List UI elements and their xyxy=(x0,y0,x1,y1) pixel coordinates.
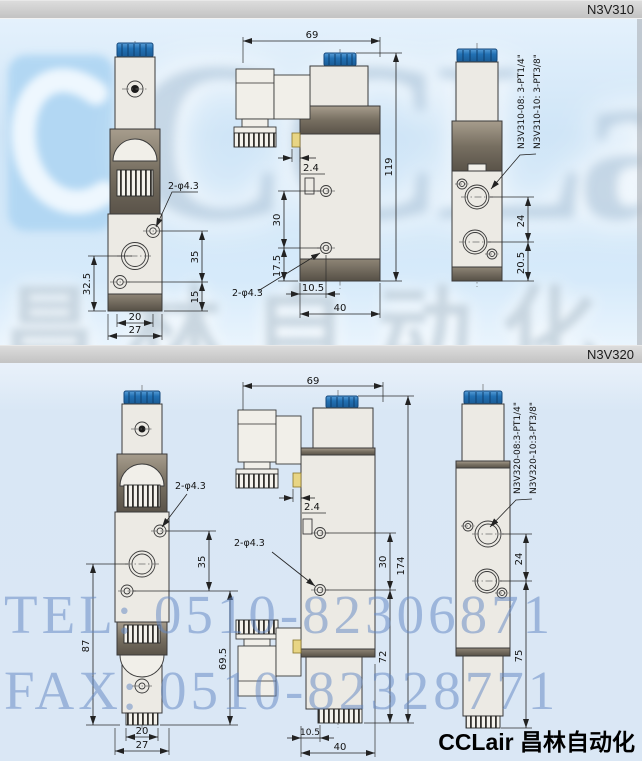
dim-87: 87 xyxy=(81,640,92,653)
bottom-knurl xyxy=(318,709,362,723)
port-thread-label-1: N3V310-08: 3-PT1/4" xyxy=(517,54,527,149)
dim-24: 24 xyxy=(514,553,525,566)
dim-2-4: 2.4 xyxy=(304,502,320,513)
yellow-tab-top xyxy=(293,473,301,487)
dim-32-5: 32.5 xyxy=(82,273,93,295)
yellow-tab-bottom xyxy=(293,640,301,653)
din-connector-top xyxy=(236,410,301,488)
brand-footer: CCLair 昌林自动化 xyxy=(438,723,635,757)
dim-10-5: 10.5 xyxy=(302,283,324,294)
coil-knurl-bottom xyxy=(236,620,278,634)
dim-30: 30 xyxy=(272,214,283,227)
dim-10-5: 10.5 xyxy=(300,728,320,738)
section-n3v320: 2-φ4.3 35 69.5 87 20 27 xyxy=(0,363,642,761)
coil-knurl xyxy=(234,133,276,147)
port-thread-label-2: N3V310-10: 3-PT3/8" xyxy=(533,54,543,149)
dim-17-5: 17.5 xyxy=(272,255,283,277)
n3v320-front-view-drawing: 2-φ4.3 35 69.5 87 20 27 xyxy=(52,381,252,761)
dim-40: 40 xyxy=(334,303,347,314)
yellow-tab xyxy=(292,133,300,147)
dim-174: 174 xyxy=(396,556,407,575)
dim-30: 30 xyxy=(378,556,389,569)
knurled-ring xyxy=(117,170,153,196)
dim-69: 69 xyxy=(306,30,319,41)
dim-hole-label: 2-φ4.3 xyxy=(168,181,199,192)
din-connector-bottom xyxy=(236,620,301,696)
dim-20: 20 xyxy=(136,726,149,737)
valve-outline xyxy=(236,390,375,728)
coil-knurl-top xyxy=(236,474,278,488)
dim-27: 27 xyxy=(136,740,149,751)
n3v310-front-view-drawing: 2-φ4.3 35 15 32.5 20 27 xyxy=(50,39,240,341)
dim-69: 69 xyxy=(307,376,320,387)
valve-outline xyxy=(115,385,169,729)
dim-35: 35 xyxy=(190,251,201,264)
valve-outline xyxy=(108,41,163,311)
dim-24: 24 xyxy=(516,215,527,228)
knurled-ring-2 xyxy=(124,625,160,643)
dim-20: 20 xyxy=(129,312,142,323)
n3v320-rear-view-drawing: N3V320-08:3-PT1/4" N3V320-10:3-PT3/8" 24… xyxy=(430,376,630,761)
knurled-ring xyxy=(124,485,160,507)
bottom-knurl-nut xyxy=(126,713,158,725)
model-title-top: N3V310 xyxy=(587,2,642,17)
dim-35: 35 xyxy=(197,556,208,569)
dim-75: 75 xyxy=(514,650,525,663)
model-title-bottom: N3V320 xyxy=(587,347,642,362)
dim-119: 119 xyxy=(384,157,395,176)
n3v310-rear-view-drawing: N3V310-08: 3-PT1/4" N3V310-10: 3-PT3/8" … xyxy=(432,37,632,339)
dim-40: 40 xyxy=(334,742,347,753)
model-header-n3v320: N3V320 xyxy=(0,345,642,364)
right-edge-strip xyxy=(637,19,642,345)
dim-72: 72 xyxy=(378,651,389,664)
valve-datasheet-page: N3V310 CCLair 昌林自动化 xyxy=(0,0,642,761)
valve-outline xyxy=(452,43,502,287)
dim-15: 15 xyxy=(190,291,201,304)
dim-2-4: 2.4 xyxy=(303,163,319,174)
n3v320-side-view-drawing: 69 2.4 2-φ4.3 30 72 174 xyxy=(228,376,438,761)
valve-outline xyxy=(456,384,510,728)
port-thread-label-1: N3V320-08:3-PT1/4" xyxy=(513,402,523,494)
n3v310-side-view-drawing: 69 2.4 30 17.5 2-φ4.3 10.5 xyxy=(228,27,428,343)
dim-20-5: 20.5 xyxy=(516,252,527,274)
section-n3v310: CCLair 昌林自动化 xyxy=(0,19,642,345)
dim-hole-label: 2-φ4.3 xyxy=(232,288,263,299)
dim-27: 27 xyxy=(129,325,142,336)
port-thread-label-2: N3V320-10:3-PT3/8" xyxy=(529,402,539,494)
model-header-n3v310: N3V310 xyxy=(0,0,642,19)
dim-hole-label: 2-φ4.3 xyxy=(175,481,206,492)
dim-hole-label: 2-φ4.3 xyxy=(234,538,265,549)
